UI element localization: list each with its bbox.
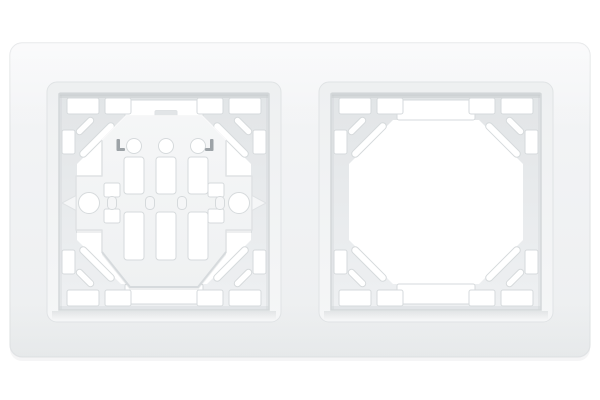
screw-hole-left [79,193,100,214]
product-image: White plastic two-gang wall frame for el… [0,0,600,400]
strap-round-holes [127,139,206,154]
screw-hole-right [229,193,250,214]
strap-lower-slots [124,212,208,260]
product-photo: White plastic two-gang wall frame for el… [0,0,600,400]
left-aperture [47,82,281,322]
right-aperture [319,82,553,322]
strap-upper-slots [124,157,208,194]
